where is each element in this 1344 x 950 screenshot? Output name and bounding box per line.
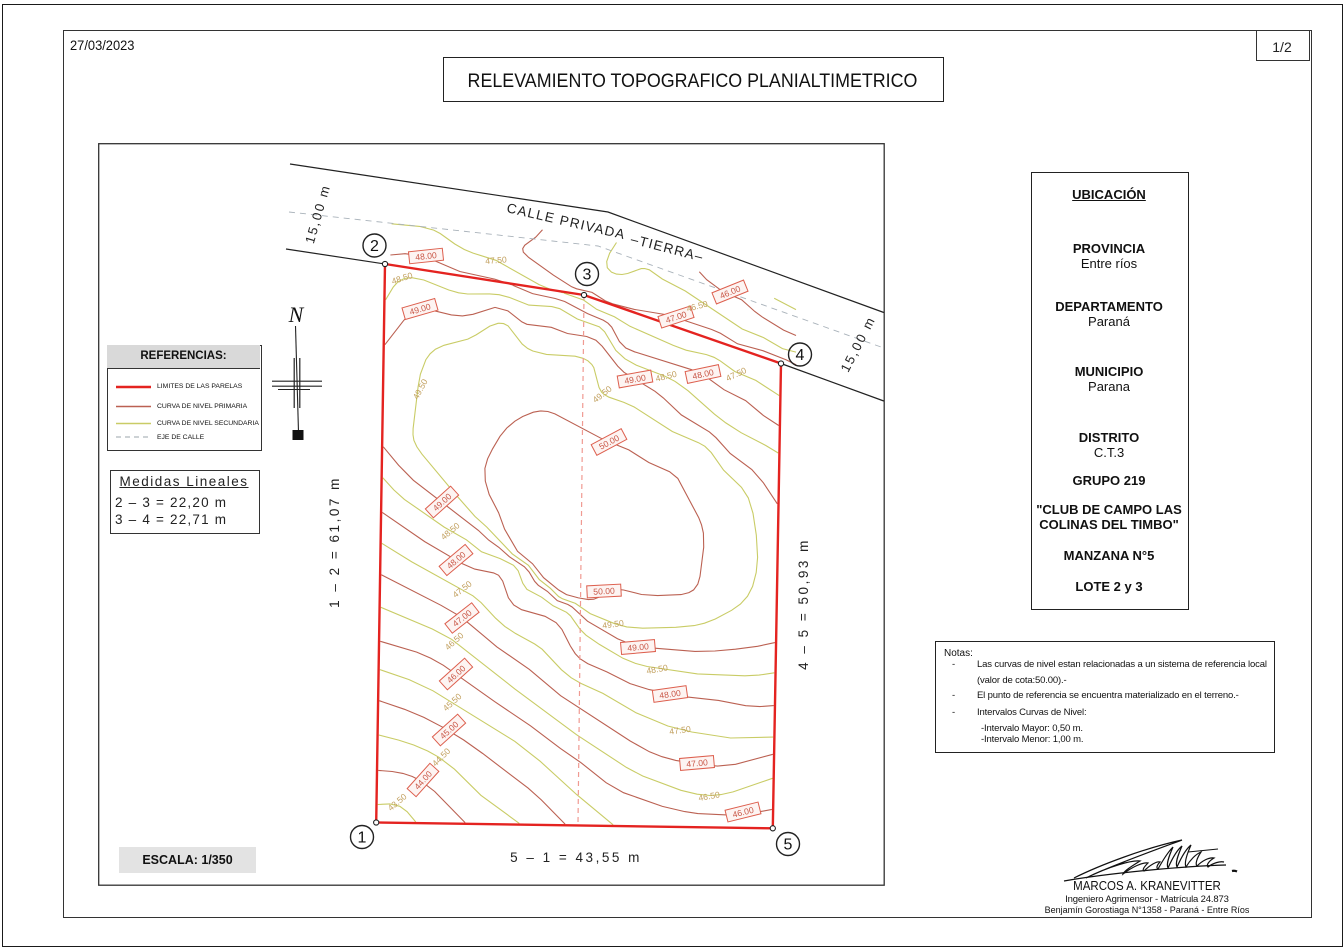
svg-text:15,00 m: 15,00 m: [302, 182, 333, 245]
svg-text:45.50: 45.50: [441, 691, 464, 713]
svg-text:N: N: [288, 302, 305, 327]
svg-text:4 – 5 = 50,93 m: 4 – 5 = 50,93 m: [796, 538, 811, 670]
svg-text:46.50: 46.50: [685, 299, 709, 314]
svg-text:43.50: 43.50: [386, 791, 409, 813]
svg-text:15,00 m: 15,00 m: [837, 313, 878, 374]
svg-text:49.00: 49.00: [627, 641, 650, 653]
svg-text:49.50: 49.50: [411, 377, 430, 401]
svg-text:47.50: 47.50: [451, 578, 474, 599]
svg-text:CALLE PRIVADA: CALLE PRIVADA: [505, 200, 627, 242]
svg-text:2: 2: [370, 238, 379, 255]
svg-text:48.50: 48.50: [439, 520, 462, 542]
svg-text:46.50: 46.50: [443, 630, 466, 652]
svg-text:5 – 1 = 43,55 m: 5 – 1 = 43,55 m: [510, 850, 642, 865]
svg-text:47.00: 47.00: [686, 757, 709, 769]
svg-text:47.50: 47.50: [485, 254, 507, 265]
svg-text:5: 5: [784, 837, 793, 854]
svg-text:46.50: 46.50: [698, 789, 721, 803]
svg-text:1: 1: [358, 830, 367, 847]
svg-text:49.50: 49.50: [602, 618, 625, 631]
svg-text:47.50: 47.50: [669, 724, 692, 737]
svg-text:4: 4: [796, 347, 805, 364]
svg-text:3: 3: [583, 267, 592, 284]
svg-text:48.50: 48.50: [646, 662, 669, 676]
svg-text:–TIERRA–: –TIERRA–: [629, 231, 705, 264]
svg-text:47.50: 47.50: [724, 365, 748, 383]
svg-text:1 – 2 = 61,07 m: 1 – 2 = 61,07 m: [327, 476, 342, 608]
svg-text:48.50: 48.50: [390, 270, 414, 286]
svg-text:49.50: 49.50: [591, 383, 614, 404]
svg-text:50.00: 50.00: [593, 586, 615, 597]
